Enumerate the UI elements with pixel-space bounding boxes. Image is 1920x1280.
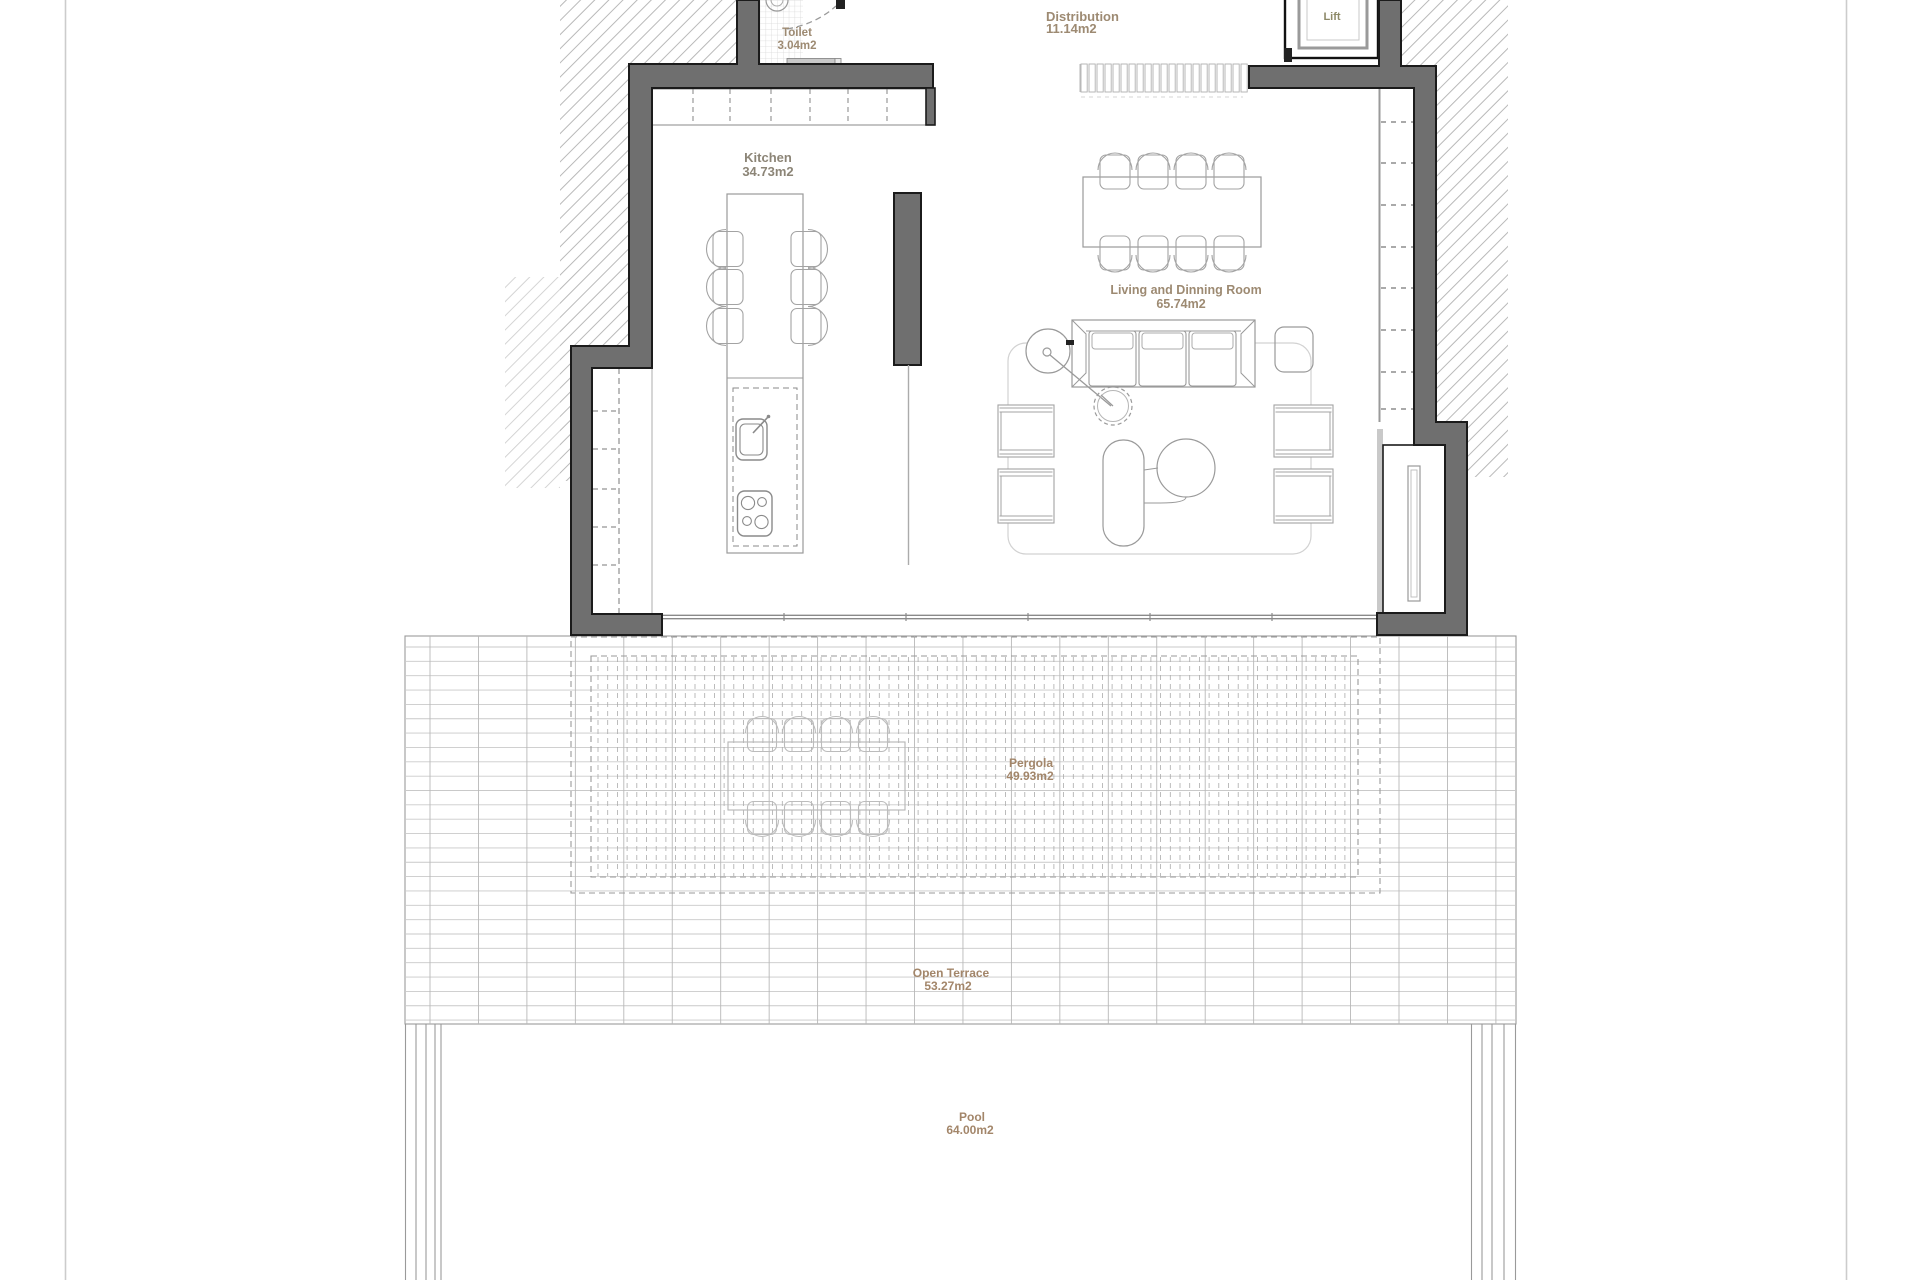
svg-text:64.00m2: 64.00m2 [946, 1123, 994, 1137]
svg-text:65.74m2: 65.74m2 [1156, 297, 1205, 311]
svg-text:Lift: Lift [1323, 11, 1340, 23]
svg-text:53.27m2: 53.27m2 [924, 979, 972, 993]
svg-text:Toilet: Toilet [782, 27, 812, 39]
svg-text:Living and Dinning Room: Living and Dinning Room [1110, 283, 1261, 297]
svg-text:Pergola: Pergola [1009, 756, 1053, 770]
svg-text:Kitchen: Kitchen [744, 150, 792, 165]
svg-text:3.04m2: 3.04m2 [777, 40, 816, 52]
svg-text:49.93m2: 49.93m2 [1006, 769, 1054, 783]
svg-text:11.14m2: 11.14m2 [1046, 21, 1097, 36]
svg-text:Open Terrace: Open Terrace [913, 966, 990, 980]
svg-text:Pool: Pool [959, 1110, 985, 1124]
svg-text:34.73m2: 34.73m2 [742, 164, 793, 179]
